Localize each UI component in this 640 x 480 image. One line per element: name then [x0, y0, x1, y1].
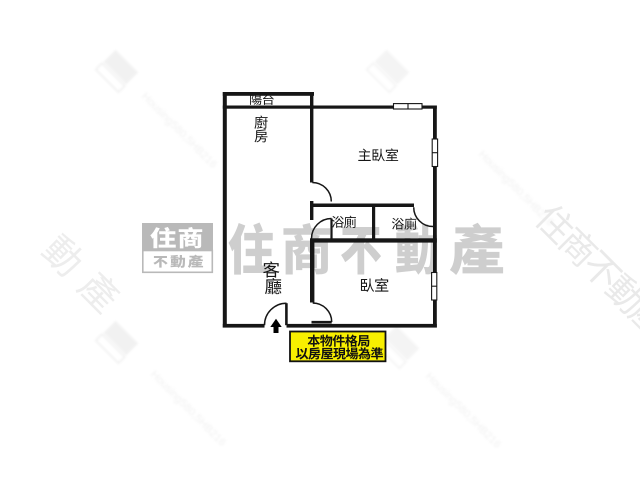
svg-text:Housing580,5HB216: Housing580,5HB216	[139, 91, 219, 171]
svg-text:Housing580,5HB216: Housing580,5HB216	[423, 371, 503, 451]
svg-text:Housing580,5HB216: Housing580,5HB216	[476, 149, 556, 229]
svg-text:Housing580,5HB216: Housing580,5HB216	[148, 369, 228, 449]
